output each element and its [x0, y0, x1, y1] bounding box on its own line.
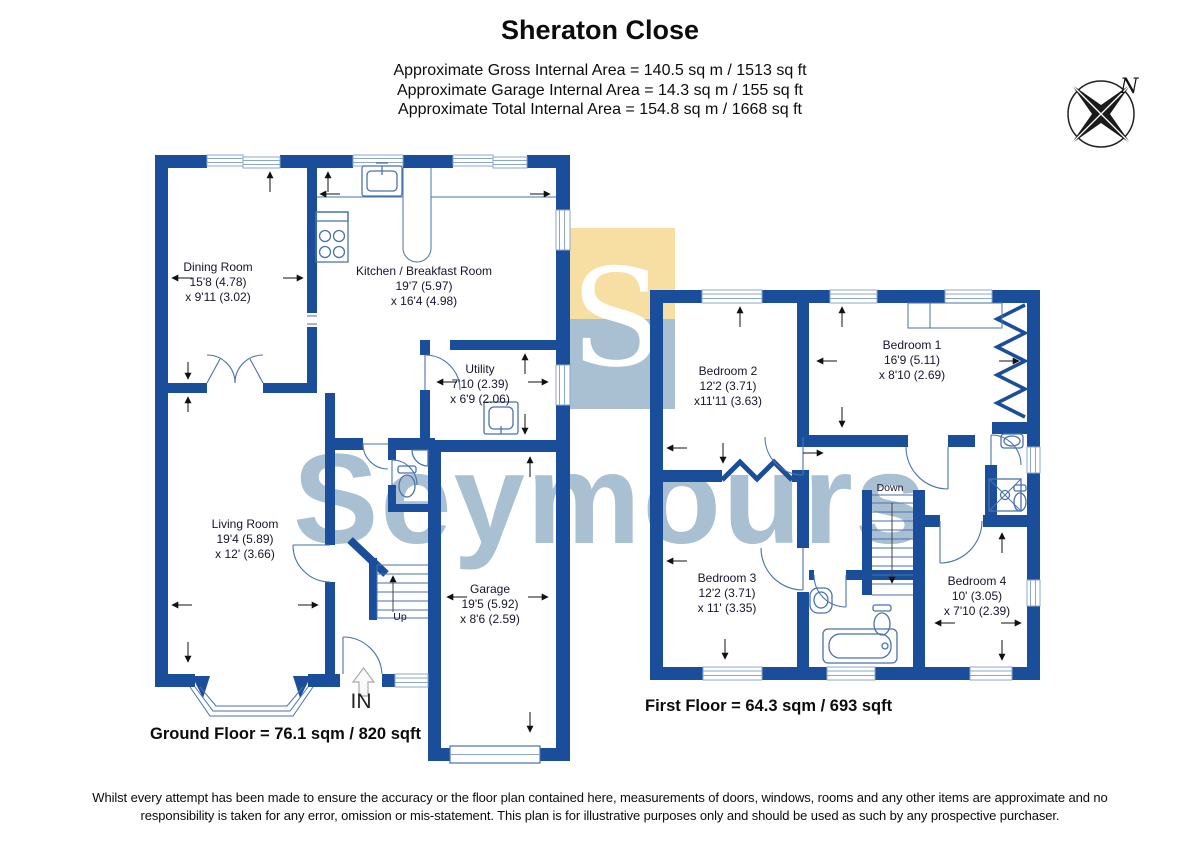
gross-area-line: Approximate Gross Internal Area = 140.5 … [0, 61, 1200, 81]
disclaimer-line-1: Whilst every attempt has been made to en… [0, 789, 1200, 807]
total-area-line: Approximate Total Internal Area = 154.8 … [0, 100, 1200, 120]
closet-bifold-doors [722, 462, 792, 480]
double-doors [207, 355, 263, 383]
disclaimer: Whilst every attempt has been made to en… [0, 789, 1200, 824]
stairs-down-label: Down [862, 482, 918, 494]
stove [316, 212, 348, 262]
room-label-dining-room: Dining Room 15'8 (4.78) x 9'11 (3.02) [156, 260, 280, 305]
ensuite-door [991, 435, 1021, 465]
first-floor-caption: First Floor = 64.3 sqm / 693 sqft [645, 697, 892, 716]
room-label-garage: Garage 19'5 (5.92) x 8'6 (2.59) [428, 582, 552, 627]
ensuite-sink [1001, 434, 1023, 448]
bedroom4-door [940, 521, 982, 563]
room-label-kitchen: Kitchen / Breakfast Room 19'7 (5.97) x 1… [334, 264, 514, 309]
area-summary: Approximate Gross Internal Area = 140.5 … [0, 61, 1200, 120]
room-label-utility: Utility 7'10 (2.39) x 6'9 (2.06) [425, 362, 535, 407]
garage-area-line: Approximate Garage Internal Area = 14.3 … [0, 81, 1200, 101]
garage-door [450, 746, 540, 763]
kitchen-counter [317, 168, 556, 262]
entrance-in-label: IN [330, 690, 392, 714]
bay-window [190, 687, 313, 716]
ensuite-toilet [1014, 485, 1026, 511]
ground-floor-plan [150, 150, 575, 765]
stairs-up-label: Up [384, 611, 416, 623]
ground-floor-caption: Ground Floor = 76.1 sqm / 820 sqft [150, 725, 421, 744]
room-label-bedroom-1: Bedroom 1 16'9 (5.11) x 8'10 (2.69) [840, 338, 984, 383]
built-in-wardrobe [908, 303, 1002, 328]
room-label-bedroom-4: Bedroom 4 10' (3.05) x 7'10 (2.39) [913, 574, 1041, 619]
floorplan-page: Sheraton Close Approximate Gross Interna… [0, 0, 1200, 848]
wc-basin [412, 450, 428, 466]
ground-floor-fixtures [190, 163, 556, 716]
wc-toilet [398, 466, 416, 497]
room-label-living-room: Living Room 19'4 (5.89) x 12' (3.66) [183, 517, 307, 562]
bathroom-toilet [873, 605, 891, 635]
hall-door [363, 444, 388, 469]
room-label-bedroom-2: Bedroom 2 12'2 (3.71) x11'11 (3.63) [664, 364, 792, 409]
room-label-bedroom-3: Bedroom 3 12'2 (3.71) x 11' (3.35) [663, 571, 791, 616]
disclaimer-line-2: responsibility is taken for any error, o… [0, 807, 1200, 825]
compass-north-label: N [1120, 74, 1138, 98]
bathroom-sink [810, 588, 832, 613]
page-title: Sheraton Close [0, 15, 1200, 46]
